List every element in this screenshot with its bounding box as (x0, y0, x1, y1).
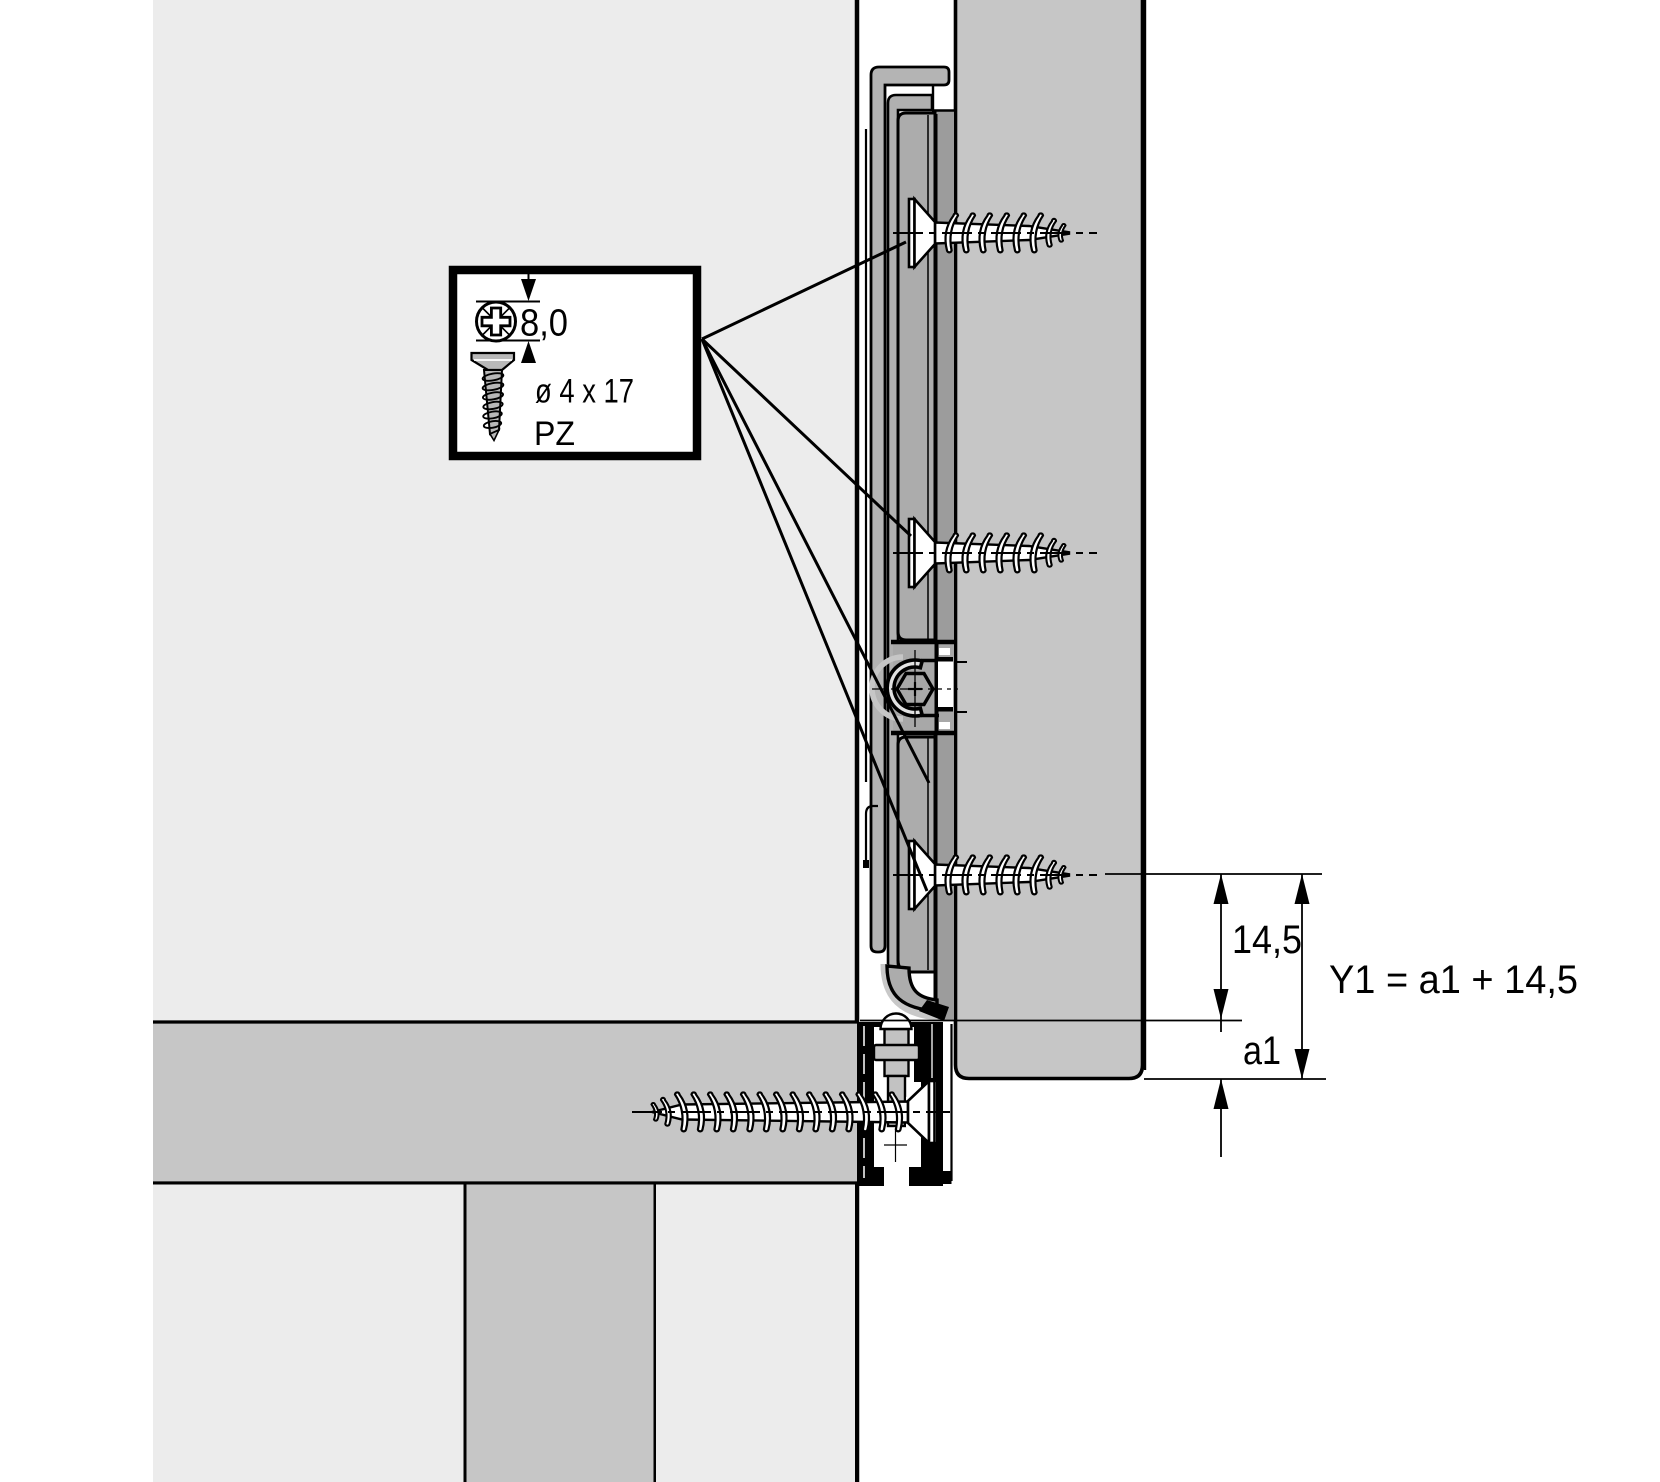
svg-text:Y1 = a1 + 14,5: Y1 = a1 + 14,5 (1329, 958, 1578, 1002)
svg-text:ø 4 x 17: ø 4 x 17 (535, 373, 634, 411)
svg-text:PZ: PZ (534, 415, 575, 453)
svg-text:14,5: 14,5 (1232, 918, 1302, 962)
svg-text:a1: a1 (1243, 1029, 1281, 1073)
svg-text:8,0: 8,0 (520, 303, 568, 345)
